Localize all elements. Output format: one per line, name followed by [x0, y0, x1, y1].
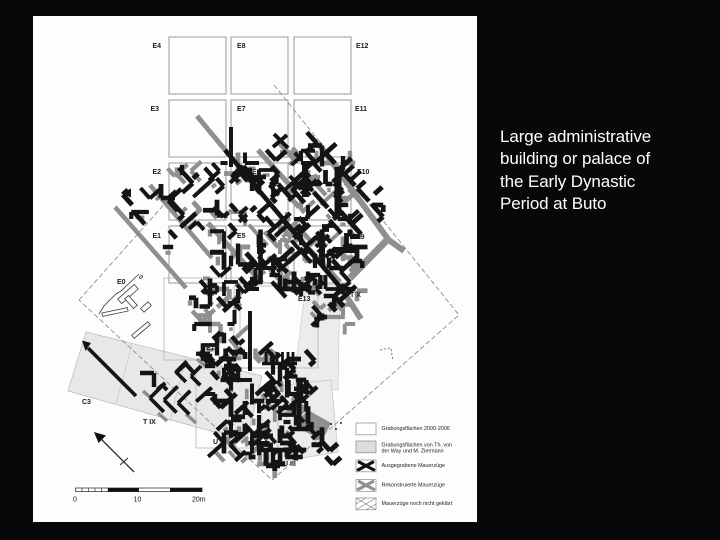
svg-text:0: 0: [73, 497, 77, 504]
svg-text:Grabungsflächen 2000-2006: Grabungsflächen 2000-2006: [382, 426, 450, 432]
svg-text:E12: E12: [356, 43, 369, 50]
svg-text:T X: T X: [350, 292, 361, 299]
svg-text:T IX: T IX: [143, 419, 156, 426]
svg-text:der Way und M. Ziermann: der Way und M. Ziermann: [382, 449, 444, 455]
svg-text:E6: E6: [252, 169, 261, 176]
svg-text:20m: 20m: [192, 497, 206, 504]
svg-text:10: 10: [134, 497, 142, 504]
svg-text:E13: E13: [298, 296, 311, 303]
svg-text:E0: E0: [117, 279, 126, 286]
svg-text:Rekonstruierte Mauerzüge: Rekonstruierte Mauerzüge: [382, 483, 446, 489]
svg-text:E14: E14: [206, 345, 219, 352]
svg-text:E11: E11: [355, 106, 367, 113]
svg-text:E9: E9: [356, 234, 365, 241]
svg-text:E3: E3: [150, 106, 159, 113]
svg-text:U III: U III: [283, 461, 296, 468]
svg-text:Ausgegrabene Mauerzüge: Ausgegrabene Mauerzüge: [382, 463, 446, 469]
svg-text:C3: C3: [82, 399, 91, 406]
svg-text:E10: E10: [357, 169, 370, 176]
svg-text:E7: E7: [237, 106, 246, 113]
svg-text:E1: E1: [152, 233, 161, 240]
svg-text:E8: E8: [237, 43, 246, 50]
svg-text:Mauerzüge noch nicht geklärt: Mauerzüge noch nicht geklärt: [382, 501, 453, 507]
svg-text:Grabungsflächen von Th. von: Grabungsflächen von Th. von: [382, 442, 453, 448]
svg-text:U I: U I: [213, 439, 222, 446]
svg-text:E4: E4: [152, 43, 161, 50]
svg-text:E2: E2: [152, 169, 161, 176]
svg-text:E5: E5: [237, 233, 246, 240]
